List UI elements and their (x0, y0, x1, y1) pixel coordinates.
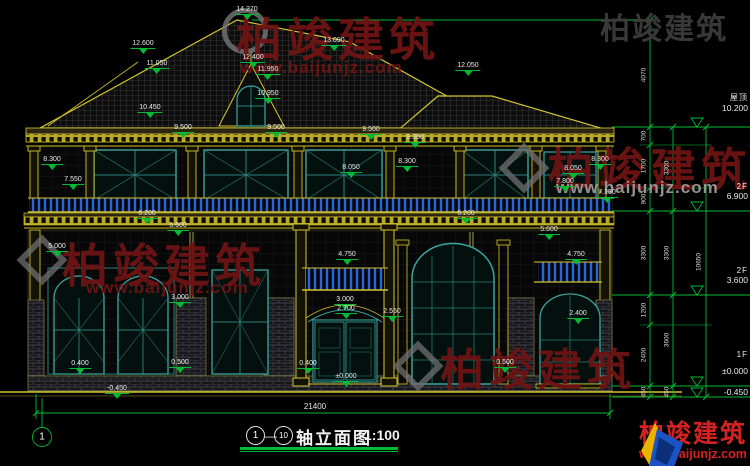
axis-bubble-number: 1 (39, 432, 45, 443)
dim-chain-label: 700 (641, 131, 648, 142)
title-axis-start-bubble: 1 (246, 426, 265, 445)
cornice-band (24, 213, 614, 228)
level-mark: 1F±0.000 (688, 350, 748, 376)
elevation-mark: 9.500 (172, 124, 194, 138)
brand-logo: 柏竣建筑 www.baijunjz.com (639, 421, 747, 461)
elevation-mark: 8.300 (589, 156, 611, 170)
elevation-mark: 11.950 (256, 66, 281, 80)
elevation-mark: 10.450 (137, 104, 162, 118)
watermark-site: www.baijunjz.com (86, 278, 249, 298)
dim-chain-label: 3300 (664, 161, 671, 175)
elevation-mark: 6.200 (136, 210, 158, 224)
elevation-mark: 2.700 (335, 305, 357, 319)
elevation-mark: 0.400 (297, 360, 319, 374)
title-axis-end-bubble: 10 (274, 426, 293, 445)
elevation-mark: -0.450 (105, 385, 129, 399)
elevation-mark: 5.000 (46, 243, 68, 257)
title-underline-thin (240, 451, 398, 452)
eave-band (26, 128, 614, 146)
elevation-mark: 0.400 (69, 360, 91, 374)
elevation-mark: 6.200 (455, 210, 477, 224)
drawing-title: 轴立面图 (296, 424, 372, 449)
dim-chain-label: 1200 (641, 303, 648, 317)
elevation-mark: 11.050 (145, 60, 170, 74)
title-underline (240, 447, 398, 450)
level-mark: 2F6.900 (688, 182, 748, 201)
elevation-mark: 9.500 (265, 124, 287, 138)
dim-chain-label: 1700 (641, 159, 648, 173)
elevation-mark: 2.550 (381, 308, 403, 322)
elevation-mark: 10.950 (255, 90, 280, 104)
dim-chain-label: 3300 (641, 246, 648, 260)
elevation-mark: 14.270 (234, 6, 259, 20)
dim-chain-label: 3300 (664, 246, 671, 260)
level-mark: 屋顶10.200 (688, 92, 748, 113)
elevation-mark: ±0.000 (333, 373, 358, 387)
dim-chain-label: 450 (641, 387, 648, 398)
dim-chain-label: 450 (664, 387, 671, 398)
drawing-scale: 1:100 (364, 427, 400, 443)
elevation-mark: 7.150 (596, 189, 618, 203)
level-mark: 2F3.600 (688, 266, 748, 285)
brand-logo-icon (639, 421, 685, 466)
elevation-mark: 8.050 (340, 164, 362, 178)
elevation-mark: 13.090 (321, 37, 346, 51)
elevation-mark: 0.500 (169, 359, 191, 373)
elevation-mark: 9.500 (360, 126, 382, 140)
elevation-mark: 7.800 (554, 178, 576, 192)
overall-width-dim: 21400 (304, 402, 326, 411)
cad-elevation-drawing: 柏竣建筑 www.baijunjz.com 柏竣建筑 柏竣建筑 www.baij… (0, 0, 750, 466)
elevation-mark: 0.500 (494, 359, 516, 373)
elevation-mark: 8.050 (562, 165, 584, 179)
elevation-mark: 7.550 (62, 176, 84, 190)
dim-chain-label: 2400 (641, 348, 648, 362)
dim-chain-label: 4070 (641, 68, 648, 82)
watermark-brand: 柏竣建筑 (440, 334, 636, 398)
level-mark: -0.450 (688, 387, 748, 397)
elevation-mark: 2.400 (567, 310, 589, 324)
elevation-mark: 12.600 (130, 40, 155, 54)
elevation-mark: 8.300 (396, 158, 418, 172)
elevation-mark: 4.750 (336, 251, 358, 265)
balcony-railing (28, 198, 614, 212)
elevation-mark: 3.000 (169, 294, 191, 308)
dim-chain-label: 900 (641, 194, 648, 205)
elevation-mark: 4.750 (565, 251, 587, 265)
elevation-mark: 5.600 (167, 222, 189, 236)
elevation-mark: 5.600 (538, 226, 560, 240)
dim-chain-label: 3600 (664, 333, 671, 347)
elevation-mark: 9.300 (404, 134, 426, 148)
watermark-brand-gray: 柏竣建筑 (600, 4, 728, 48)
elevation-mark: 12.050 (455, 62, 480, 76)
elevation-mark: 8.300 (41, 156, 63, 170)
